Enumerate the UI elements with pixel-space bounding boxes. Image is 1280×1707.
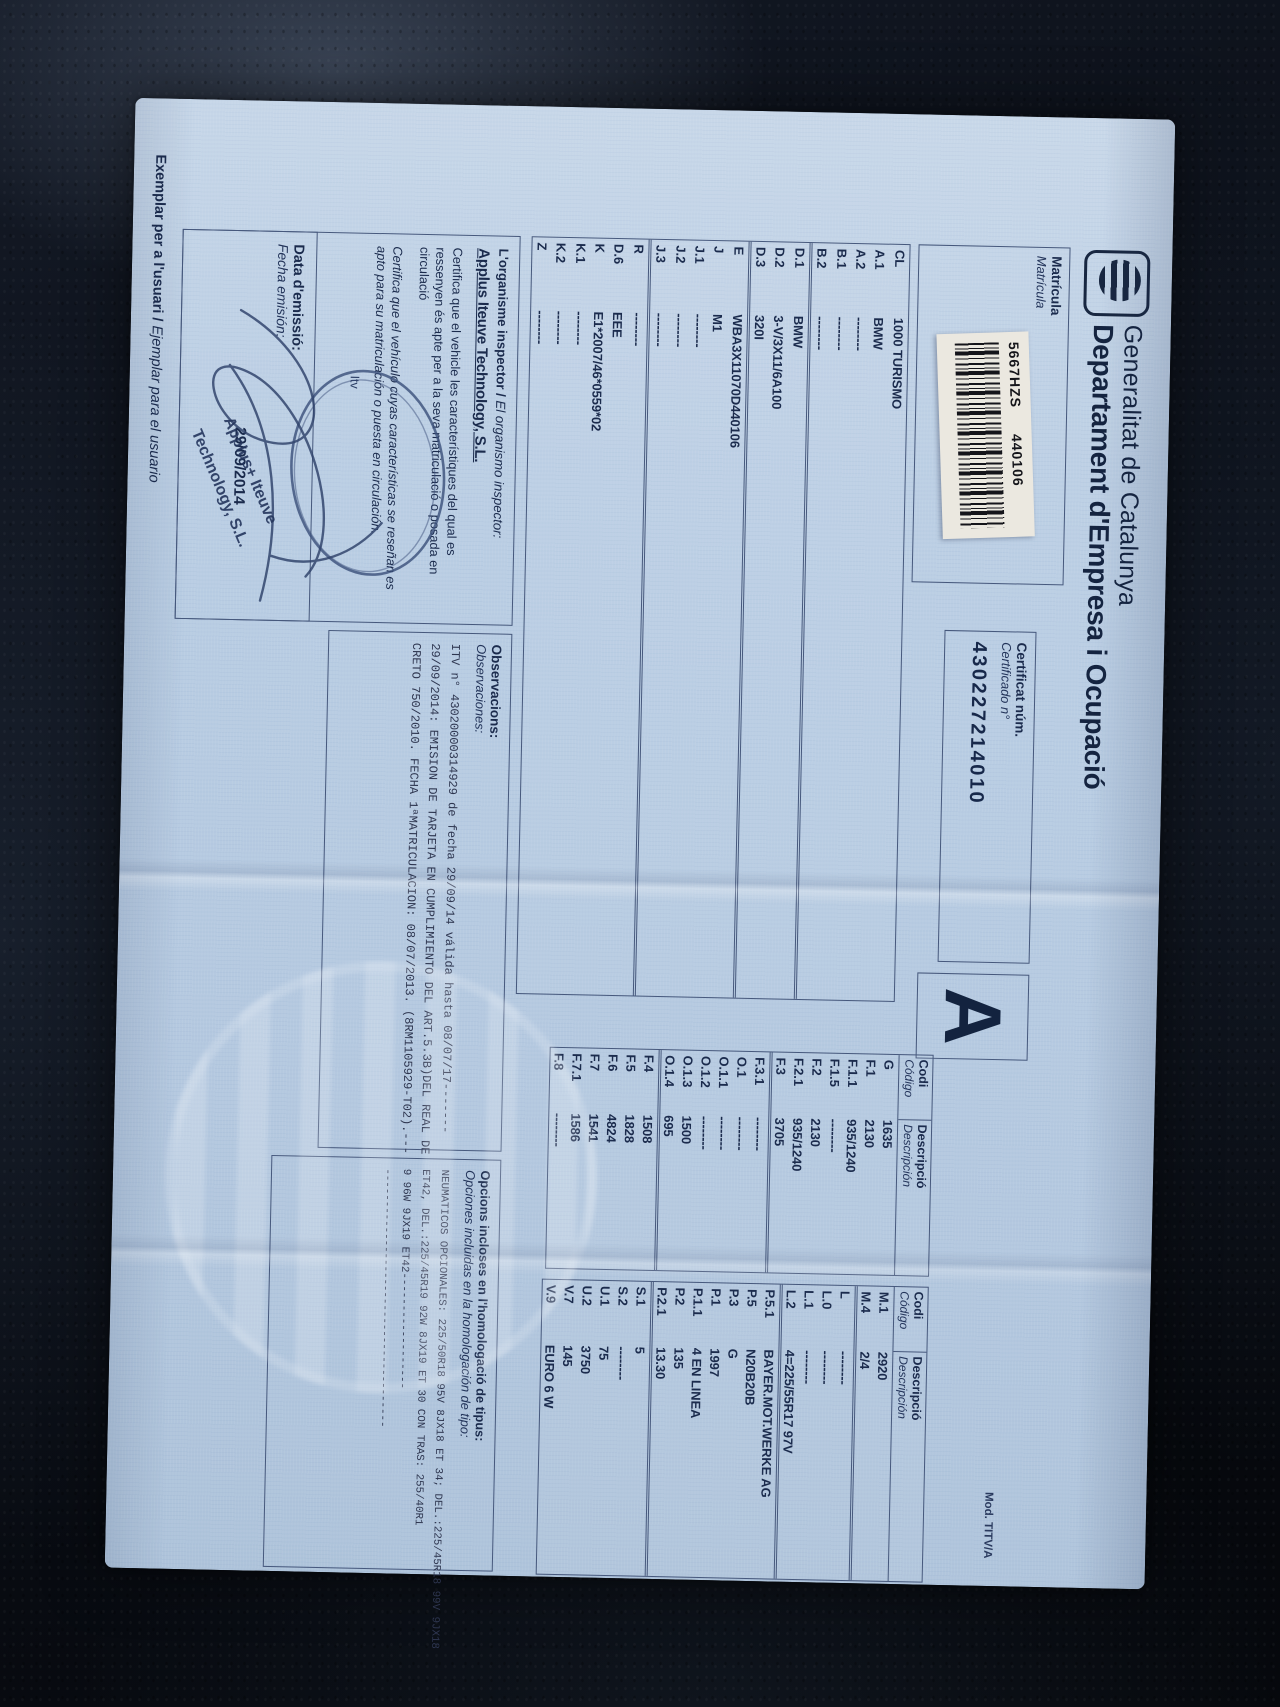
ink-stamp-signature: Applus+ Iteuve Technology, S.L. <box>143 268 482 705</box>
itv-certificate-document: Generalitat de Catalunya Departament d'E… <box>105 97 1176 1588</box>
matricula-box: Matrícula Matrícula 5667HZS440106 <box>912 244 1071 585</box>
inspector-label: L'organisme inspector / El organismo ins… <box>489 248 512 612</box>
table-vehicle-identification: CL1000 TURISMOA.1BMWA.2--------B.1------… <box>515 236 910 1002</box>
watermark-emblem <box>160 956 601 1397</box>
table-header: CodiCódigo DescripcióDescripción <box>888 1287 928 1582</box>
barcode <box>955 342 1005 528</box>
dept-title: Departament d'Empresa i Ocupació <box>1077 323 1119 789</box>
leather-seat-background: Generalitat de Catalunya Departament d'E… <box>0 0 1280 1707</box>
rotated-document-wrapper: Generalitat de Catalunya Departament d'E… <box>105 97 1176 1588</box>
certificate-number: 430227214010 <box>961 641 990 951</box>
certificate-number-box: Certificat núm. Certificado n° 430227214… <box>938 629 1037 963</box>
mod-reference: Mod. TITV/A <box>981 1491 994 1558</box>
document-class-badge: A <box>916 972 1030 1060</box>
table-engine-tyres: CodiCódigo DescripcióDescripción M.12920… <box>536 1278 929 1582</box>
plate-number: 5667HZS440106 <box>1006 341 1028 526</box>
plate-sticker: 5667HZS440106 <box>936 331 1034 539</box>
generalitat-logo-icon <box>1083 249 1150 316</box>
table-header: CodiCódigo DescripcióDescripción <box>894 1055 933 1276</box>
table-masses-dimensions: CodiCódigo DescripcióDescripción G1635F.… <box>545 1046 934 1276</box>
